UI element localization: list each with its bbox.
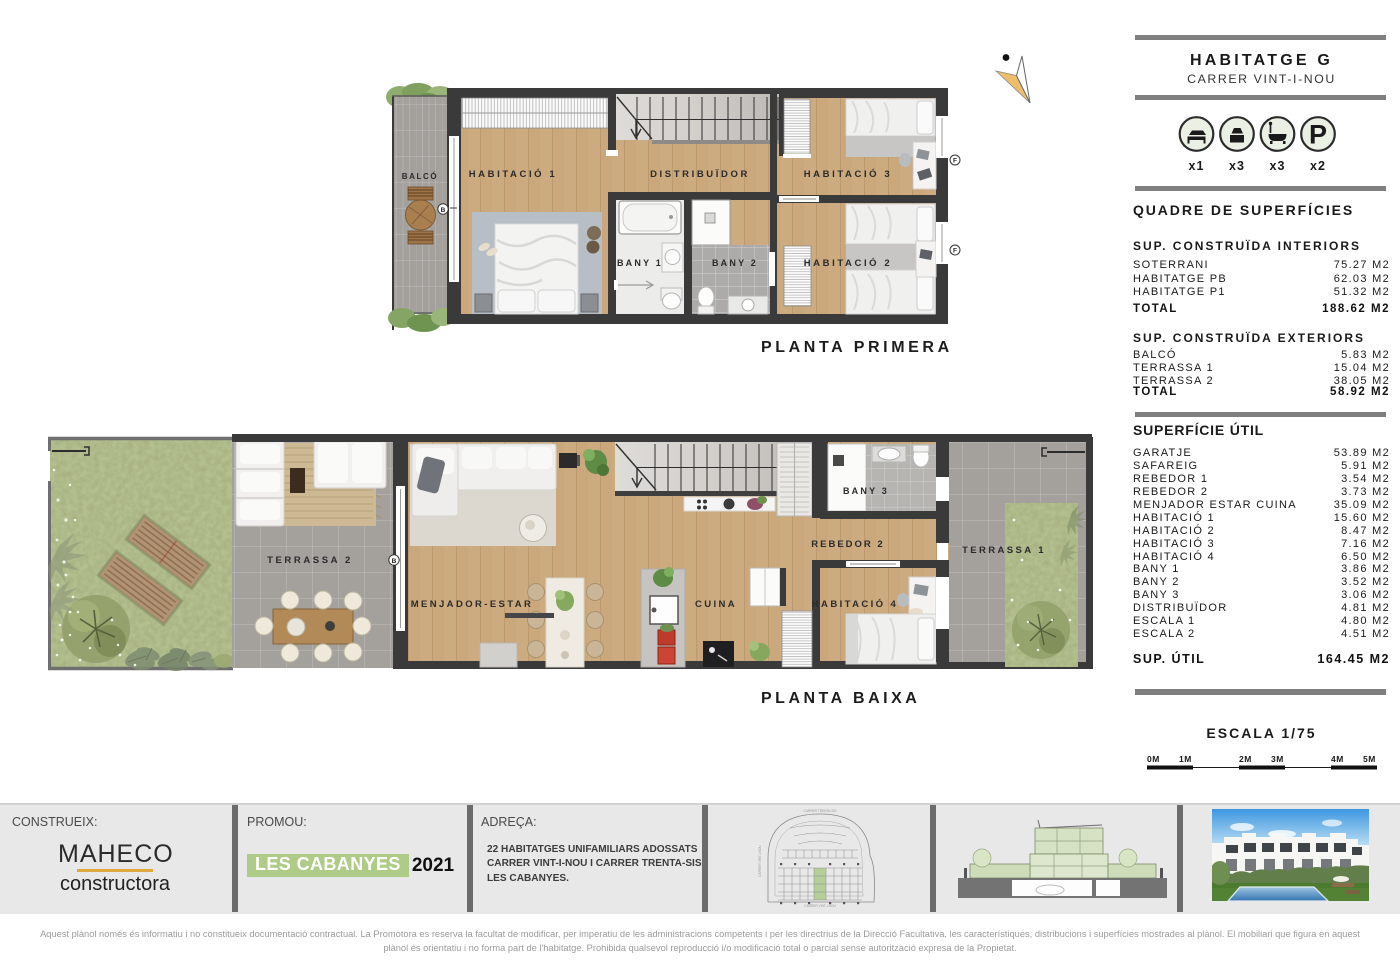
svg-text:x1: x1 — [1189, 159, 1205, 173]
svg-text:HABITACIÓ 2: HABITACIÓ 2 — [804, 257, 893, 269]
svg-text:CARRER TRENTA-SIS: CARRER TRENTA-SIS — [804, 809, 837, 813]
svg-text:2M: 2M — [1239, 754, 1252, 764]
svg-text:HABITACIÓ 3: HABITACIÓ 3 — [804, 168, 893, 180]
svg-text:5M: 5M — [1363, 754, 1376, 764]
svg-text:BANY 3: BANY 3 — [843, 486, 889, 496]
svg-text:F: F — [953, 248, 957, 255]
svg-text:B: B — [392, 558, 397, 565]
svg-text:F: F — [953, 158, 957, 165]
svg-text:HABITACIÓ 4: HABITACIÓ 4 — [812, 598, 898, 610]
svg-text:3M: 3M — [1271, 754, 1284, 764]
svg-text:BALCÓ: BALCÓ — [402, 172, 438, 181]
svg-text:BANY 1: BANY 1 — [617, 258, 663, 268]
svg-text:BANY 2: BANY 2 — [712, 258, 758, 268]
svg-text:x3: x3 — [1229, 159, 1245, 173]
svg-text:DISTRIBUÏDOR: DISTRIBUÏDOR — [650, 169, 750, 180]
svg-text:x2: x2 — [1310, 159, 1326, 173]
svg-text:B: B — [441, 207, 446, 214]
svg-text:REBEDOR 2: REBEDOR 2 — [811, 539, 884, 550]
svg-text:CARRER VINT-I-NOU: CARRER VINT-I-NOU — [758, 845, 762, 877]
svg-text:CUINA: CUINA — [695, 599, 737, 610]
svg-text:P: P — [1309, 120, 1327, 150]
svg-text:TERRASSA 1: TERRASSA 1 — [962, 545, 1046, 556]
svg-text:4M: 4M — [1331, 754, 1344, 764]
svg-text:1M: 1M — [1179, 754, 1192, 764]
svg-text:x3: x3 — [1270, 159, 1286, 173]
svg-text:CARRER VINT-I-NOU: CARRER VINT-I-NOU — [804, 904, 836, 908]
svg-text:HABITACIÓ 1: HABITACIÓ 1 — [469, 168, 558, 180]
svg-text:TERRASSA 2: TERRASSA 2 — [267, 555, 353, 566]
svg-text:0M: 0M — [1147, 754, 1160, 764]
svg-text:MENJADOR-ESTAR: MENJADOR-ESTAR — [411, 599, 534, 610]
